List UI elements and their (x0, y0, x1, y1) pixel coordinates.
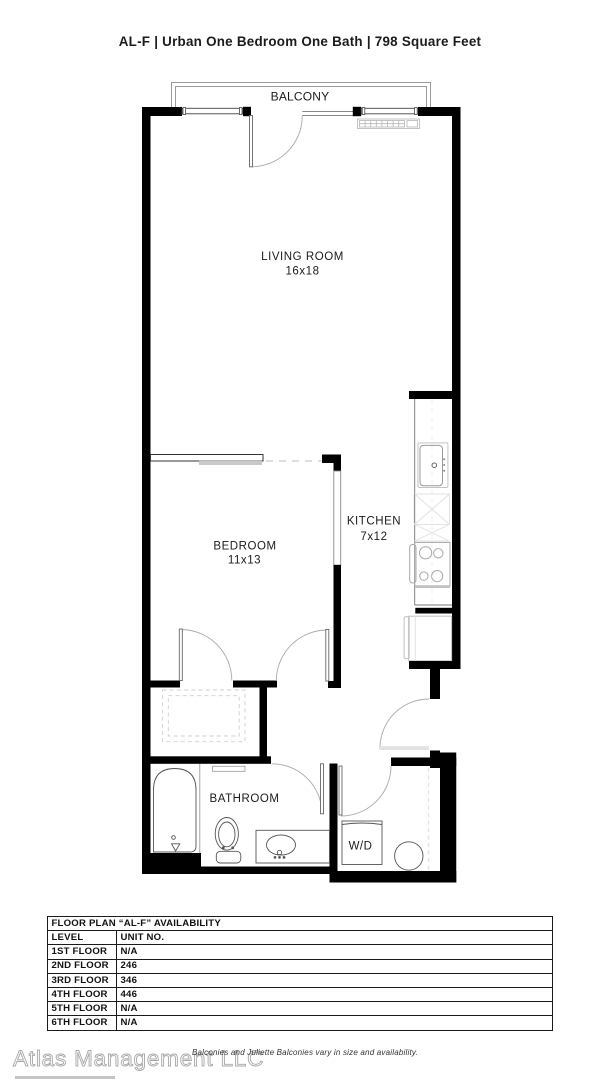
svg-text:LIVING ROOM: LIVING ROOM (261, 251, 344, 263)
svg-text:7x12: 7x12 (360, 531, 387, 543)
svg-text:W/D: W/D (349, 841, 373, 853)
svg-text:BATHROOM: BATHROOM (210, 793, 280, 805)
svg-text:AL-F | Urban One Bedroom One B: AL-F | Urban One Bedroom One Bath | 798 … (119, 34, 482, 49)
svg-text:16x18: 16x18 (285, 265, 319, 277)
svg-text:BALCONY: BALCONY (271, 89, 330, 103)
svg-text:KITCHEN: KITCHEN (347, 515, 401, 527)
svg-text:BEDROOM: BEDROOM (213, 541, 276, 553)
svg-text:11x13: 11x13 (228, 554, 261, 566)
